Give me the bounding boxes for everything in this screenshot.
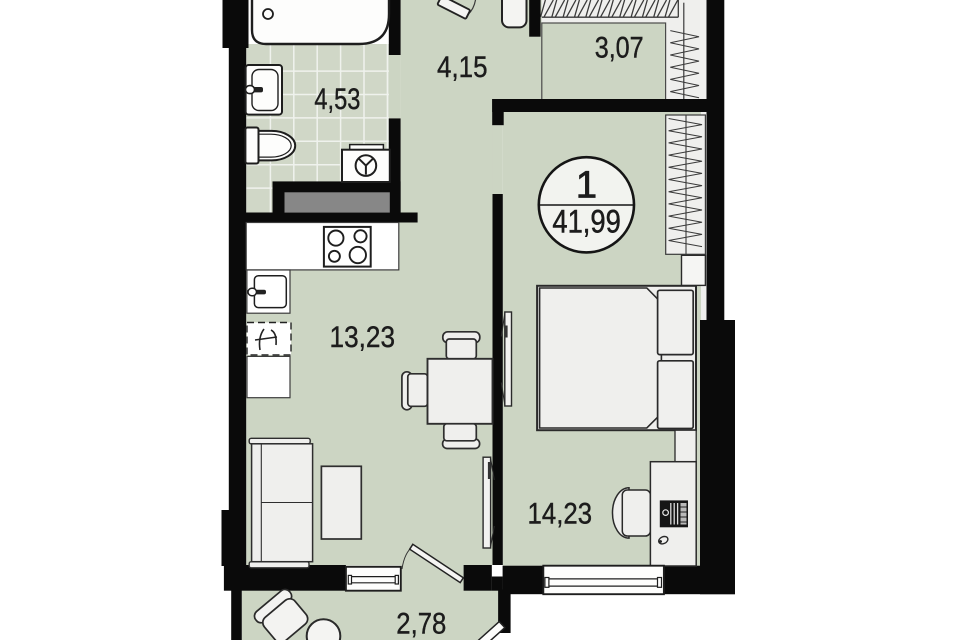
svg-text:2,78: 2,78 (396, 608, 446, 640)
svg-text:1: 1 (576, 165, 597, 207)
svg-text:13,23: 13,23 (330, 321, 396, 354)
svg-text:41,99: 41,99 (552, 204, 621, 240)
svg-text:4,53: 4,53 (314, 83, 360, 116)
svg-text:3,07: 3,07 (595, 32, 644, 65)
svg-text:4,15: 4,15 (437, 51, 488, 84)
svg-text:14,23: 14,23 (528, 498, 593, 531)
